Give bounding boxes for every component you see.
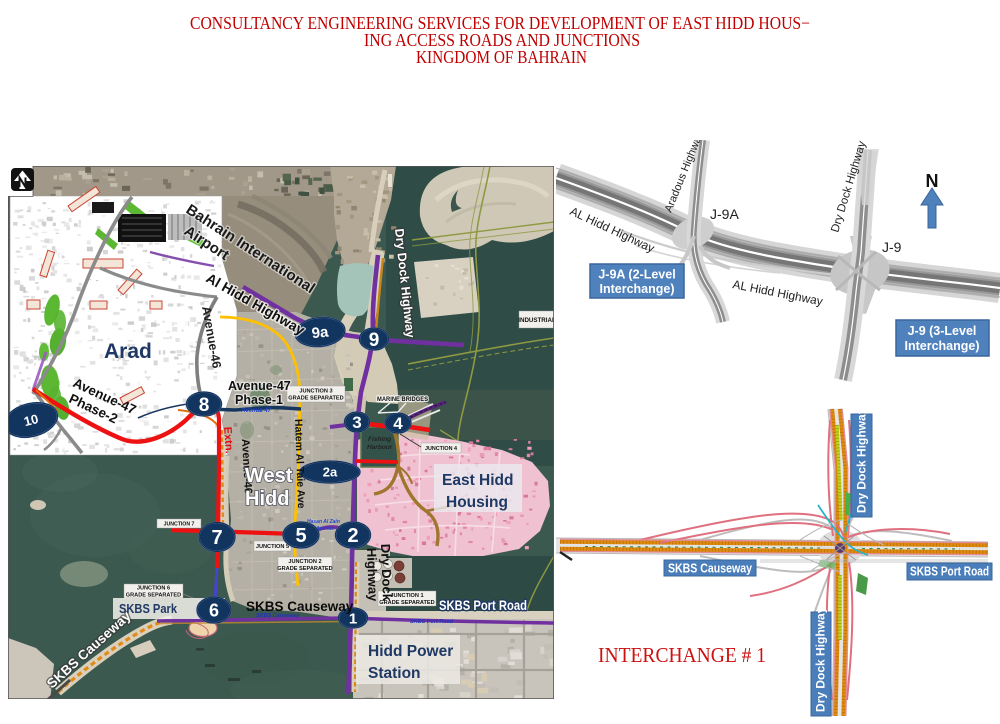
svg-text:4: 4 xyxy=(393,414,403,433)
svg-text:5: 5 xyxy=(295,525,306,547)
svg-text:JUNCTION 4: JUNCTION 4 xyxy=(425,446,457,452)
svg-text:8: 8 xyxy=(199,395,210,416)
svg-text:JUNCTION 5: JUNCTION 5 xyxy=(256,544,289,550)
svg-text:7: 7 xyxy=(211,527,222,549)
svg-text:JUNCTION 7: JUNCTION 7 xyxy=(164,521,195,527)
svg-text:INTERCHANGE # 1: INTERCHANGE # 1 xyxy=(598,643,766,667)
svg-text:JUNCTION 6: JUNCTION 6 xyxy=(137,586,170,592)
svg-text:J-9 (3-Level: J-9 (3-Level xyxy=(908,324,977,338)
svg-text:Hidd Power: Hidd Power xyxy=(368,643,453,660)
svg-text:Harbour: Harbour xyxy=(367,444,393,451)
svg-text:INDUSTRIAL: INDUSTRIAL xyxy=(518,317,554,324)
svg-text:Highway: Highway xyxy=(364,548,381,603)
svg-text:Interchange): Interchange) xyxy=(599,282,674,296)
svg-text:9: 9 xyxy=(369,330,380,351)
svg-text:JUNCTION 2: JUNCTION 2 xyxy=(288,559,321,565)
svg-text:2: 2 xyxy=(347,525,358,547)
svg-text:GRADE SEPARATED: GRADE SEPARATED xyxy=(277,566,332,572)
svg-text:Interchange): Interchange) xyxy=(904,339,979,353)
svg-text:Avenue 47: Avenue 47 xyxy=(240,408,272,414)
svg-text:N: N xyxy=(926,171,939,191)
svg-text:Extn.: Extn. xyxy=(221,426,235,454)
svg-text:JUNCTION 3: JUNCTION 3 xyxy=(299,389,332,395)
svg-text:Station: Station xyxy=(368,665,421,682)
svg-text:West: West xyxy=(245,465,293,487)
svg-text:SKBS Causeway: SKBS Causeway xyxy=(246,599,354,614)
svg-text:Phase-1: Phase-1 xyxy=(235,393,283,407)
svg-text:3: 3 xyxy=(352,413,361,432)
svg-text:MARINE BRIDGES: MARINE BRIDGES xyxy=(377,396,428,403)
svg-text:KINGDOM OF BAHRAIN: KINGDOM OF BAHRAIN xyxy=(416,47,587,67)
svg-text:SKBS Port Road: SKBS Port Road xyxy=(410,619,454,625)
svg-text:Avenue-47: Avenue-47 xyxy=(228,379,291,393)
svg-text:SKBS Port Road: SKBS Port Road xyxy=(439,597,527,613)
svg-text:Dry Dock Highway: Dry Dock Highway xyxy=(814,606,828,712)
svg-text:AL Hidd Highway: AL Hidd Highway xyxy=(731,277,824,308)
svg-text:J-9: J-9 xyxy=(882,239,902,255)
svg-text:Hidd: Hidd xyxy=(245,488,289,510)
svg-text:Fishing: Fishing xyxy=(368,436,391,443)
svg-text:2a: 2a xyxy=(323,465,338,480)
svg-text:SKBS Causeway: SKBS Causeway xyxy=(668,562,752,576)
svg-text:East Hidd: East Hidd xyxy=(442,472,513,489)
svg-text:GRADE SEPARATED: GRADE SEPARATED xyxy=(288,395,343,401)
svg-text:6: 6 xyxy=(209,600,219,620)
svg-text:Arad: Arad xyxy=(104,340,152,363)
svg-text:J-9A (2-Level: J-9A (2-Level xyxy=(598,268,675,282)
svg-text:J-9A: J-9A xyxy=(710,206,739,222)
svg-text:Housing: Housing xyxy=(446,494,508,511)
svg-text:GRADE SEPARATED: GRADE SEPARATED xyxy=(126,592,181,598)
svg-text:9a: 9a xyxy=(311,324,330,343)
svg-text:Dry Dock Highway: Dry Dock Highway xyxy=(855,407,869,513)
svg-text:SKBS Port Road: SKBS Port Road xyxy=(910,565,989,579)
